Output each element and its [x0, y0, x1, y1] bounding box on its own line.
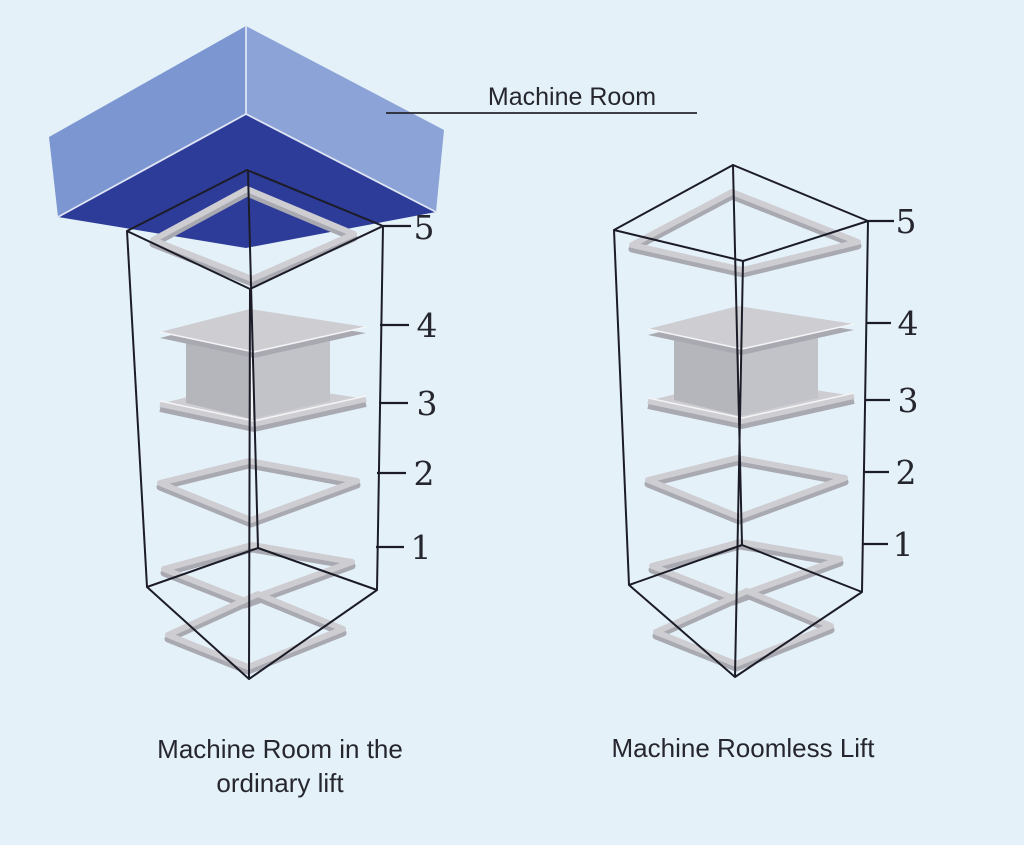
- floor-number-1-right: 1: [893, 525, 914, 564]
- floor-number-2-right: 2: [896, 453, 917, 492]
- floor-ring-2: [160, 461, 357, 524]
- floor-number-4-right: 4: [898, 304, 919, 343]
- floor-number-1-left: 1: [411, 528, 432, 567]
- lift-comparison-diagram: 5 4 3 2 1 Machine Room: [0, 0, 1024, 845]
- machine-room-box: [49, 26, 444, 248]
- floor-ring-5-right: [632, 192, 858, 274]
- floor-number-2-left: 2: [414, 454, 435, 493]
- floor-number-3-left: 3: [417, 384, 438, 423]
- floor-number-4-left: 4: [417, 306, 438, 345]
- caption-ordinary-lift-line2: ordinary lift: [216, 768, 344, 798]
- caption-roomless-lift: Machine Roomless Lift: [612, 733, 876, 763]
- floor-ring-2-right: [648, 458, 845, 521]
- floor-number-3-right: 3: [898, 381, 919, 420]
- roomless-lift-shaft: 5 4 3 2 1: [614, 165, 919, 677]
- machine-room-label: Machine Room: [488, 83, 656, 111]
- caption-ordinary-lift-line1: Machine Room in the: [157, 734, 403, 764]
- ordinary-lift-shaft: 5 4 3 2 1: [49, 26, 444, 679]
- floor-number-5-right: 5: [896, 202, 917, 241]
- floor-number-5-left: 5: [414, 208, 435, 247]
- elevator-car-right: [648, 306, 854, 426]
- elevator-car-left: [160, 309, 366, 429]
